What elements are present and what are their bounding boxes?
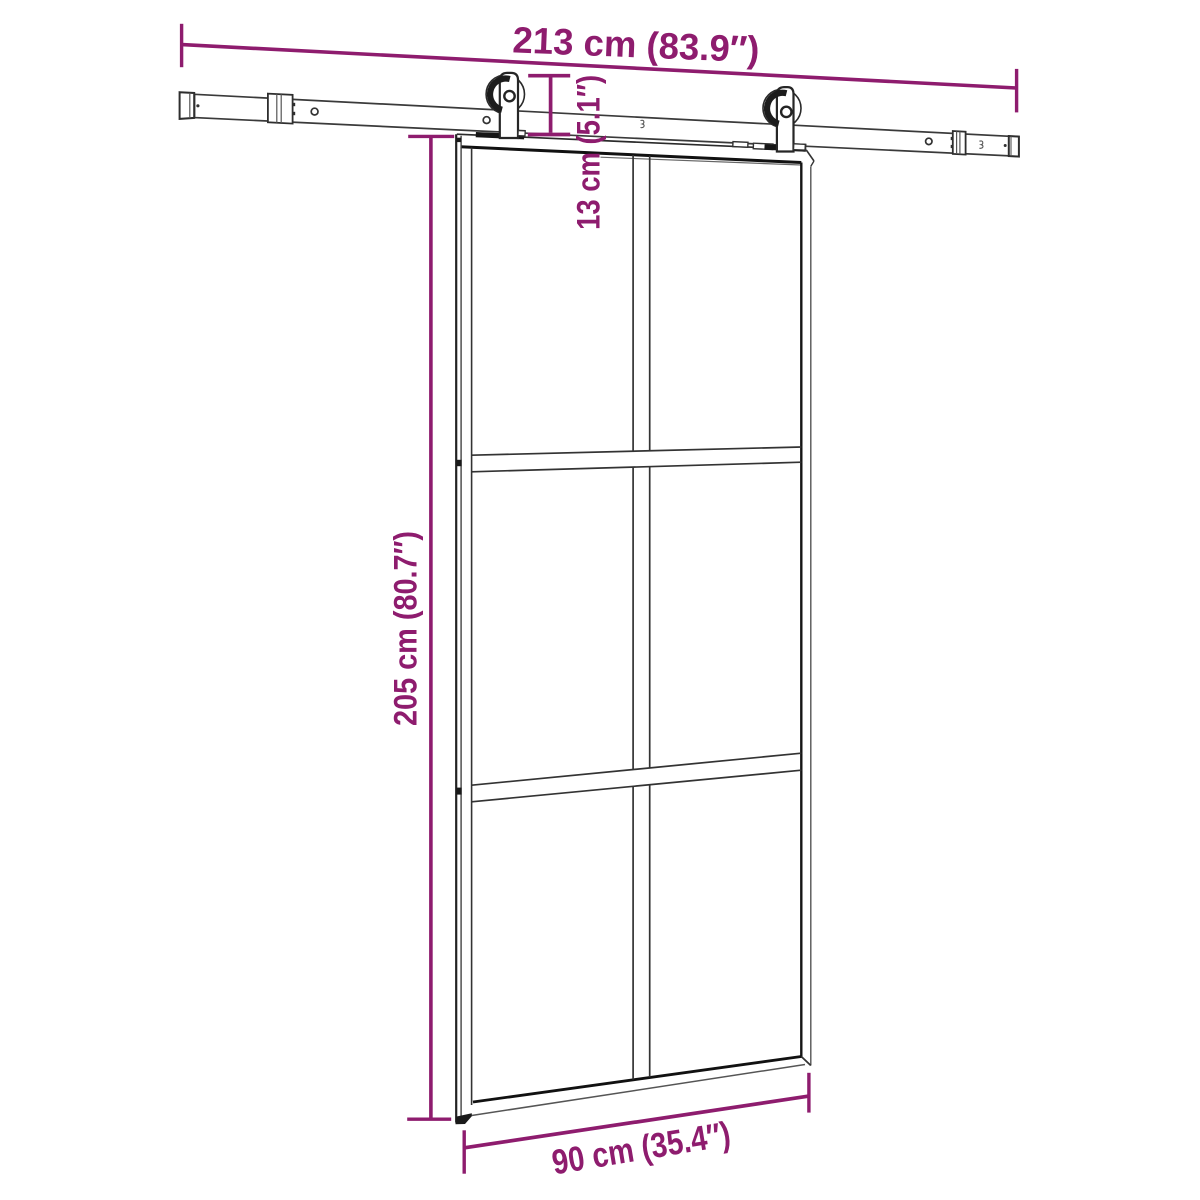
svg-text:205 cm (80.7″): 205 cm (80.7″)	[388, 531, 424, 726]
svg-text:13 cm (5.1″): 13 cm (5.1″)	[571, 75, 607, 230]
